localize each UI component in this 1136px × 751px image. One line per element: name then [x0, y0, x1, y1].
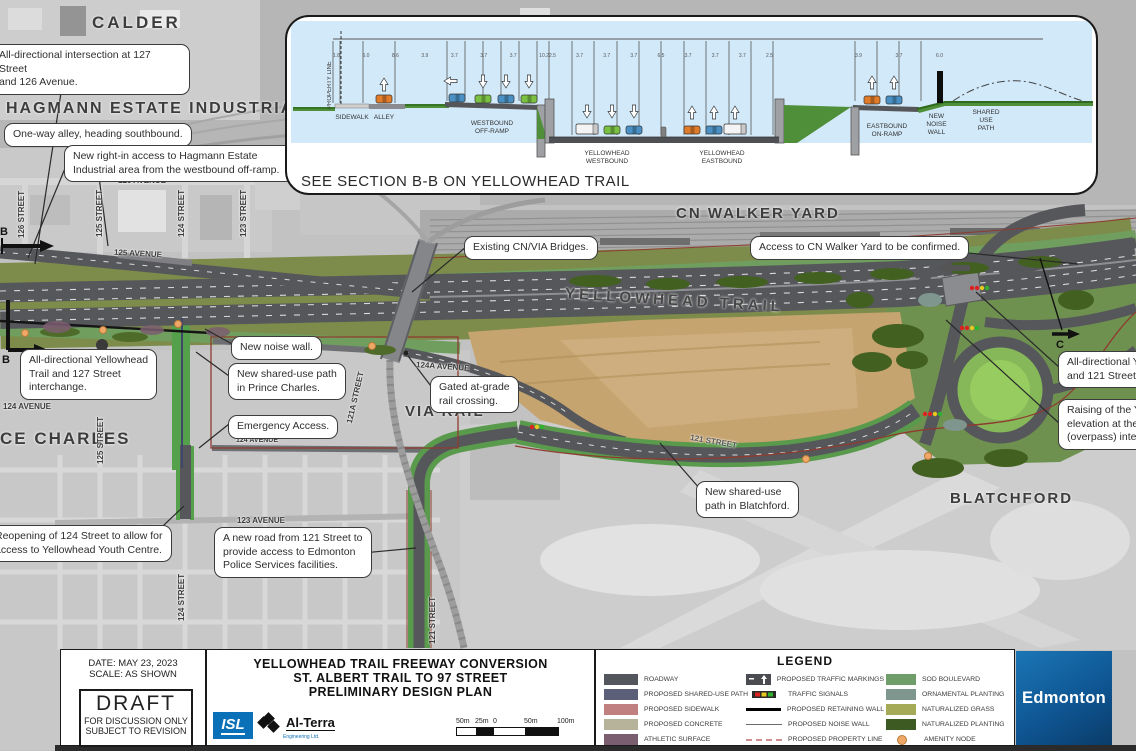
edmonton-logo: Edmonton — [1016, 651, 1112, 745]
design-plan-page: CALDER HAGMANN ESTATE INDUSTRIAL CN WALK… — [0, 0, 1136, 751]
isl-logo: ISL — [213, 712, 253, 739]
callout-gated-rail-crossing: Gated at-grade rail crossing. — [430, 376, 519, 413]
legend-icon-retaining-wall — [746, 708, 781, 711]
label-alley: ALLEY — [364, 114, 404, 122]
street-label-123-street: 123 STREET — [239, 185, 248, 237]
street-label-125-street: 125 STREET — [95, 185, 104, 237]
callout-one-way-alley: One-way alley, heading southbound. — [4, 123, 192, 147]
dims-left: 1.86.08.63.93.73.73.710.2 — [333, 53, 549, 59]
legend-icon-traffic-markings — [746, 674, 771, 685]
legend-swatch-ornamental — [886, 689, 916, 700]
al-terra-subtext: Engineering Ltd. — [283, 734, 319, 740]
callout-cn-via-bridges: Existing CN/VIA Bridges. — [464, 236, 598, 260]
legend-swatch-naturalized-planting — [886, 719, 916, 730]
area-label-cn-walker-yard: CN WALKER YARD — [676, 205, 840, 222]
label-yellowhead-eastbound: YELLOWHEAD EASTBOUND — [677, 150, 767, 166]
legend-swatch-shared-use-path — [604, 689, 638, 700]
callout-emergency-access: Emergency Access. — [228, 415, 338, 439]
plan-title-line1: YELLOWHEAD TRAIL FREEWAY CONVERSION — [207, 657, 594, 671]
label-new-noise-wall: NEW NOISE WALL — [914, 113, 959, 137]
section-b-b-inset: PROPERTY LINE 1.86.08.63.93.73.73.710.2 … — [285, 15, 1098, 195]
callout-shared-use-blatchford: New shared-use path in Blatchford. — [696, 481, 799, 518]
callout-127-street-interchange: All-directional Yellowhead Trail and 127… — [20, 349, 157, 400]
callout-reopening-124-street: Reopening of 124 Street to allow for acc… — [0, 525, 172, 562]
area-label-prince-charles: CE CHARLES — [0, 429, 131, 449]
title-panel: YELLOWHEAD TRAIL FREEWAY CONVERSION ST. … — [206, 649, 595, 746]
draft-sub1: FOR DISCUSSION ONLY — [81, 716, 191, 726]
scale-bar-graphic — [456, 727, 559, 736]
street-label-121-street-s: 121 STREET — [428, 584, 437, 644]
callout-shared-use-prince-charles: New shared-use path in Prince Charles. — [228, 363, 346, 400]
legend-icon-amenity-node — [897, 735, 907, 745]
dims-mid: 2.53.73.73.76.53.73.73.72.5 — [549, 53, 773, 59]
callout-new-noise-wall: New noise wall. — [231, 336, 322, 360]
section-caption: SEE SECTION B-B ON YELLOWHEAD TRAIL — [301, 173, 630, 190]
legend-icon-noise-wall — [746, 724, 782, 726]
dims-right: 3.93.76.0 — [855, 53, 943, 59]
area-label-blatchford: BLATCHFORD — [950, 490, 1073, 507]
legend-swatch-athletic — [604, 734, 638, 745]
legend-title: LEGEND — [596, 654, 1014, 668]
scale-bar-labels: 50m25m050m100m — [456, 718, 576, 725]
legend-swatch-concrete — [604, 719, 638, 730]
scale-line: SCALE: AS SHOWN — [61, 669, 205, 680]
legend-col-surfaces: ROADWAY PROPOSED SHARED-USE PATH PROPOSE… — [604, 674, 744, 745]
callout-new-road-121-street: A new road from 121 Street to provide ac… — [214, 527, 372, 578]
street-label-125-street-s: 125 STREET — [96, 412, 105, 464]
draft-sub2: SUBJECT TO REVISION — [81, 726, 191, 736]
plan-title-line3: PRELIMINARY DESIGN PLAN — [207, 685, 594, 699]
legend-col-lines: PROPOSED TRAFFIC MARKINGS TRAFFIC SIGNAL… — [746, 674, 884, 745]
draft-stamp: DRAFT FOR DISCUSSION ONLY SUBJECT TO REV… — [79, 689, 193, 747]
callout-raising-elevation: Raising of the Yellowhead Trail elevatio… — [1058, 399, 1136, 450]
section-marker-c: C — [1056, 339, 1064, 351]
legend-panel: LEGEND ROADWAY PROPOSED SHARED-USE PATH … — [595, 649, 1015, 746]
callout-127st-126ave-intersection: All-directional intersection at 127 Stre… — [0, 44, 190, 95]
legend-icon-property-line — [746, 739, 782, 741]
callout-right-in-access: New right-in access to Hagmann Estate In… — [64, 145, 294, 182]
legend-swatch-naturalized-grass — [886, 704, 916, 715]
street-label-123-avenue: 123 AVENUE — [237, 516, 285, 525]
label-shared-use-path: SHARED USE PATH — [961, 109, 1011, 133]
plan-title-line2: ST. ALBERT TRAIL TO 97 STREET — [207, 671, 594, 685]
al-terra-logo: Al-Terra — [259, 714, 335, 731]
legend-col-landscape: SOD BOULEVARD ORNAMENTAL PLANTING NATURA… — [886, 674, 1016, 745]
legend-swatch-roadway — [604, 674, 638, 685]
area-label-calder: CALDER — [92, 13, 181, 33]
area-label-hagmann: HAGMANN ESTATE INDUSTRIAL — [6, 100, 306, 118]
street-label-124-street: 124 STREET — [177, 185, 186, 237]
street-label-124-street-s: 124 STREET — [177, 555, 186, 621]
date-line: DATE: MAY 23, 2023 — [61, 658, 205, 669]
date-draft-panel: DATE: MAY 23, 2023 SCALE: AS SHOWN DRAFT… — [60, 649, 206, 746]
legend-icon-traffic-signals — [746, 689, 782, 700]
legend-swatch-sod — [886, 674, 916, 685]
section-marker-b-bottom: B — [2, 354, 10, 366]
scale-bar: 50m25m050m100m — [456, 718, 576, 736]
property-line-label: PROPERTY LINE — [327, 39, 333, 109]
label-westbound-off-ramp: WESTBOUND OFF-RAMP — [452, 120, 532, 136]
section-graphics — [287, 17, 1096, 193]
callout-cn-walker-access: Access to CN Walker Yard to be confirmed… — [750, 236, 969, 260]
callout-121-street-interchange: All-directional Yellowhead Trail and 121… — [1058, 351, 1136, 388]
street-label-124-avenue-w: 124 AVENUE — [3, 402, 51, 411]
label-yellowhead-westbound: YELLOWHEAD WESTBOUND — [562, 150, 652, 166]
legend-swatch-sidewalk — [604, 704, 638, 715]
street-label-126-street: 126 STREET — [17, 186, 26, 238]
section-marker-b-top: B — [0, 226, 8, 238]
draft-word: DRAFT — [81, 692, 191, 716]
